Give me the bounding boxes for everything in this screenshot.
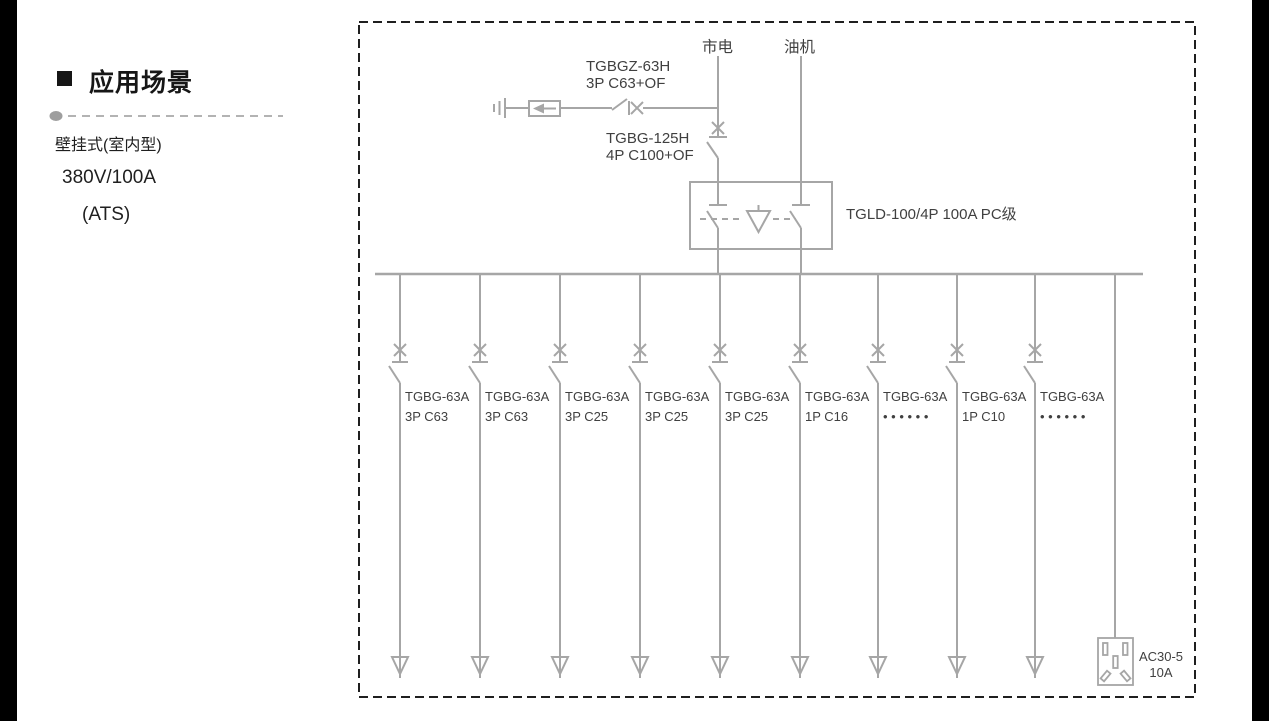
branch-circuit-6	[789, 274, 808, 678]
spd-breaker-model: TGBGZ-63H	[586, 58, 670, 75]
branch-model: TGBG-63A	[805, 387, 869, 407]
branch-model: TGBG-63A	[405, 387, 469, 407]
socket-feeder	[1098, 274, 1133, 685]
socket-icon	[1098, 638, 1133, 685]
branch-label-9: TGBG-63A • • • • • •	[1040, 387, 1104, 427]
mains-source-label: 市电	[702, 35, 733, 57]
spd-branch	[494, 98, 718, 118]
spd-breaker-label: TGBGZ-63H 3P C63+OF	[586, 58, 670, 92]
branch-spec: 1P C16	[805, 407, 869, 427]
spd-arrow-icon	[533, 104, 544, 114]
branch-model: TGBG-63A	[485, 387, 549, 407]
earth-ground-icon	[494, 98, 505, 118]
enclosure-border	[359, 22, 1195, 697]
socket-label: AC30-5 10A	[1136, 649, 1186, 681]
branch-circuit-7	[867, 274, 886, 678]
branch-circuit-8	[946, 274, 965, 678]
branch-spec: 3P C25	[565, 407, 629, 427]
branch-label-5: TGBG-63A 3P C25	[725, 387, 789, 427]
branch-spec: 3P C25	[725, 407, 789, 427]
branch-model: TGBG-63A	[645, 387, 709, 407]
generator-source-label: 油机	[784, 35, 815, 57]
branch-model: TGBG-63A	[883, 387, 947, 407]
branch-model: TGBG-63A	[1040, 387, 1104, 407]
branch-model: TGBG-63A	[962, 387, 1026, 407]
branch-label-2: TGBG-63A 3P C63	[485, 387, 549, 427]
branch-label-1: TGBG-63A 3P C63	[405, 387, 469, 427]
branch-circuit-5	[709, 274, 728, 678]
ats-switch	[690, 182, 832, 274]
branch-label-7: TGBG-63A • • • • • •	[883, 387, 947, 427]
socket-rating: 10A	[1136, 665, 1186, 681]
branch-spec: • • • • • •	[1040, 407, 1104, 427]
main-breaker-model: TGBG-125H	[606, 130, 694, 147]
branch-circuit-2	[469, 274, 488, 678]
ats-model-label: TGLD-100/4P 100A PC级	[846, 206, 1017, 223]
branch-circuit-9	[1024, 274, 1043, 678]
branch-spec: 3P C25	[645, 407, 709, 427]
ats-actuator-icon	[747, 211, 770, 232]
circuit-diagram-canvas	[0, 0, 1269, 721]
main-breaker-spec: 4P C100+OF	[606, 147, 694, 164]
branch-model: TGBG-63A	[725, 387, 789, 407]
heading-divider	[50, 111, 284, 121]
branch-circuit-1	[389, 274, 408, 678]
branch-label-6: TGBG-63A 1P C16	[805, 387, 869, 427]
branch-spec: • • • • • •	[883, 407, 947, 427]
branch-spec: 1P C10	[962, 407, 1026, 427]
socket-model: AC30-5	[1136, 649, 1186, 665]
branch-spec: 3P C63	[485, 407, 549, 427]
branch-spec: 3P C63	[405, 407, 469, 427]
branch-label-3: TGBG-63A 3P C25	[565, 387, 629, 427]
branch-label-8: TGBG-63A 1P C10	[962, 387, 1026, 427]
branch-label-4: TGBG-63A 3P C25	[645, 387, 709, 427]
main-breaker-label: TGBG-125H 4P C100+OF	[606, 130, 694, 164]
branch-model: TGBG-63A	[565, 387, 629, 407]
spd-breaker-spec: 3P C63+OF	[586, 75, 670, 92]
page: 应用场景 壁挂式(室内型) 380V/100A (ATS)	[0, 0, 1269, 721]
branch-circuit-3	[549, 274, 568, 678]
branch-circuit-4	[629, 274, 648, 678]
